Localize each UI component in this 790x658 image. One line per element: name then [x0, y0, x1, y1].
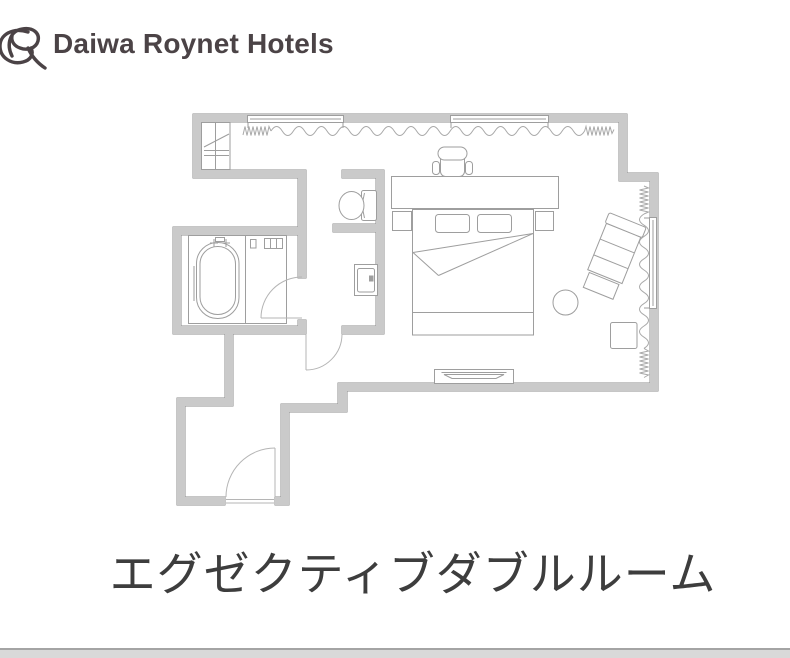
footer-bar — [0, 648, 790, 658]
closet — [202, 123, 231, 170]
vanity-sink — [355, 265, 378, 296]
window-top-left — [248, 116, 344, 129]
bathtub — [194, 243, 239, 319]
tv-board — [435, 370, 514, 384]
window-top-right — [451, 116, 549, 129]
desk — [392, 177, 559, 209]
bed — [393, 210, 554, 336]
bathroom — [189, 236, 287, 324]
chaise-lounge — [580, 213, 647, 301]
pillow-right — [478, 215, 512, 233]
desk-chair — [433, 147, 473, 177]
toilet — [339, 191, 377, 221]
window-right — [644, 218, 657, 309]
room-title: エグゼクティブダブルルーム — [0, 538, 790, 604]
bathroom-door — [261, 277, 302, 318]
side-table — [611, 323, 638, 349]
entrance-door — [226, 448, 275, 503]
counter-amenities — [251, 239, 283, 249]
page: Daiwa Roynet Hotels — [0, 0, 790, 658]
sanitary-door — [306, 334, 342, 370]
curtain-right — [640, 186, 649, 378]
pillow-left — [436, 215, 470, 233]
stool — [553, 290, 578, 315]
curtain-top — [243, 127, 614, 136]
